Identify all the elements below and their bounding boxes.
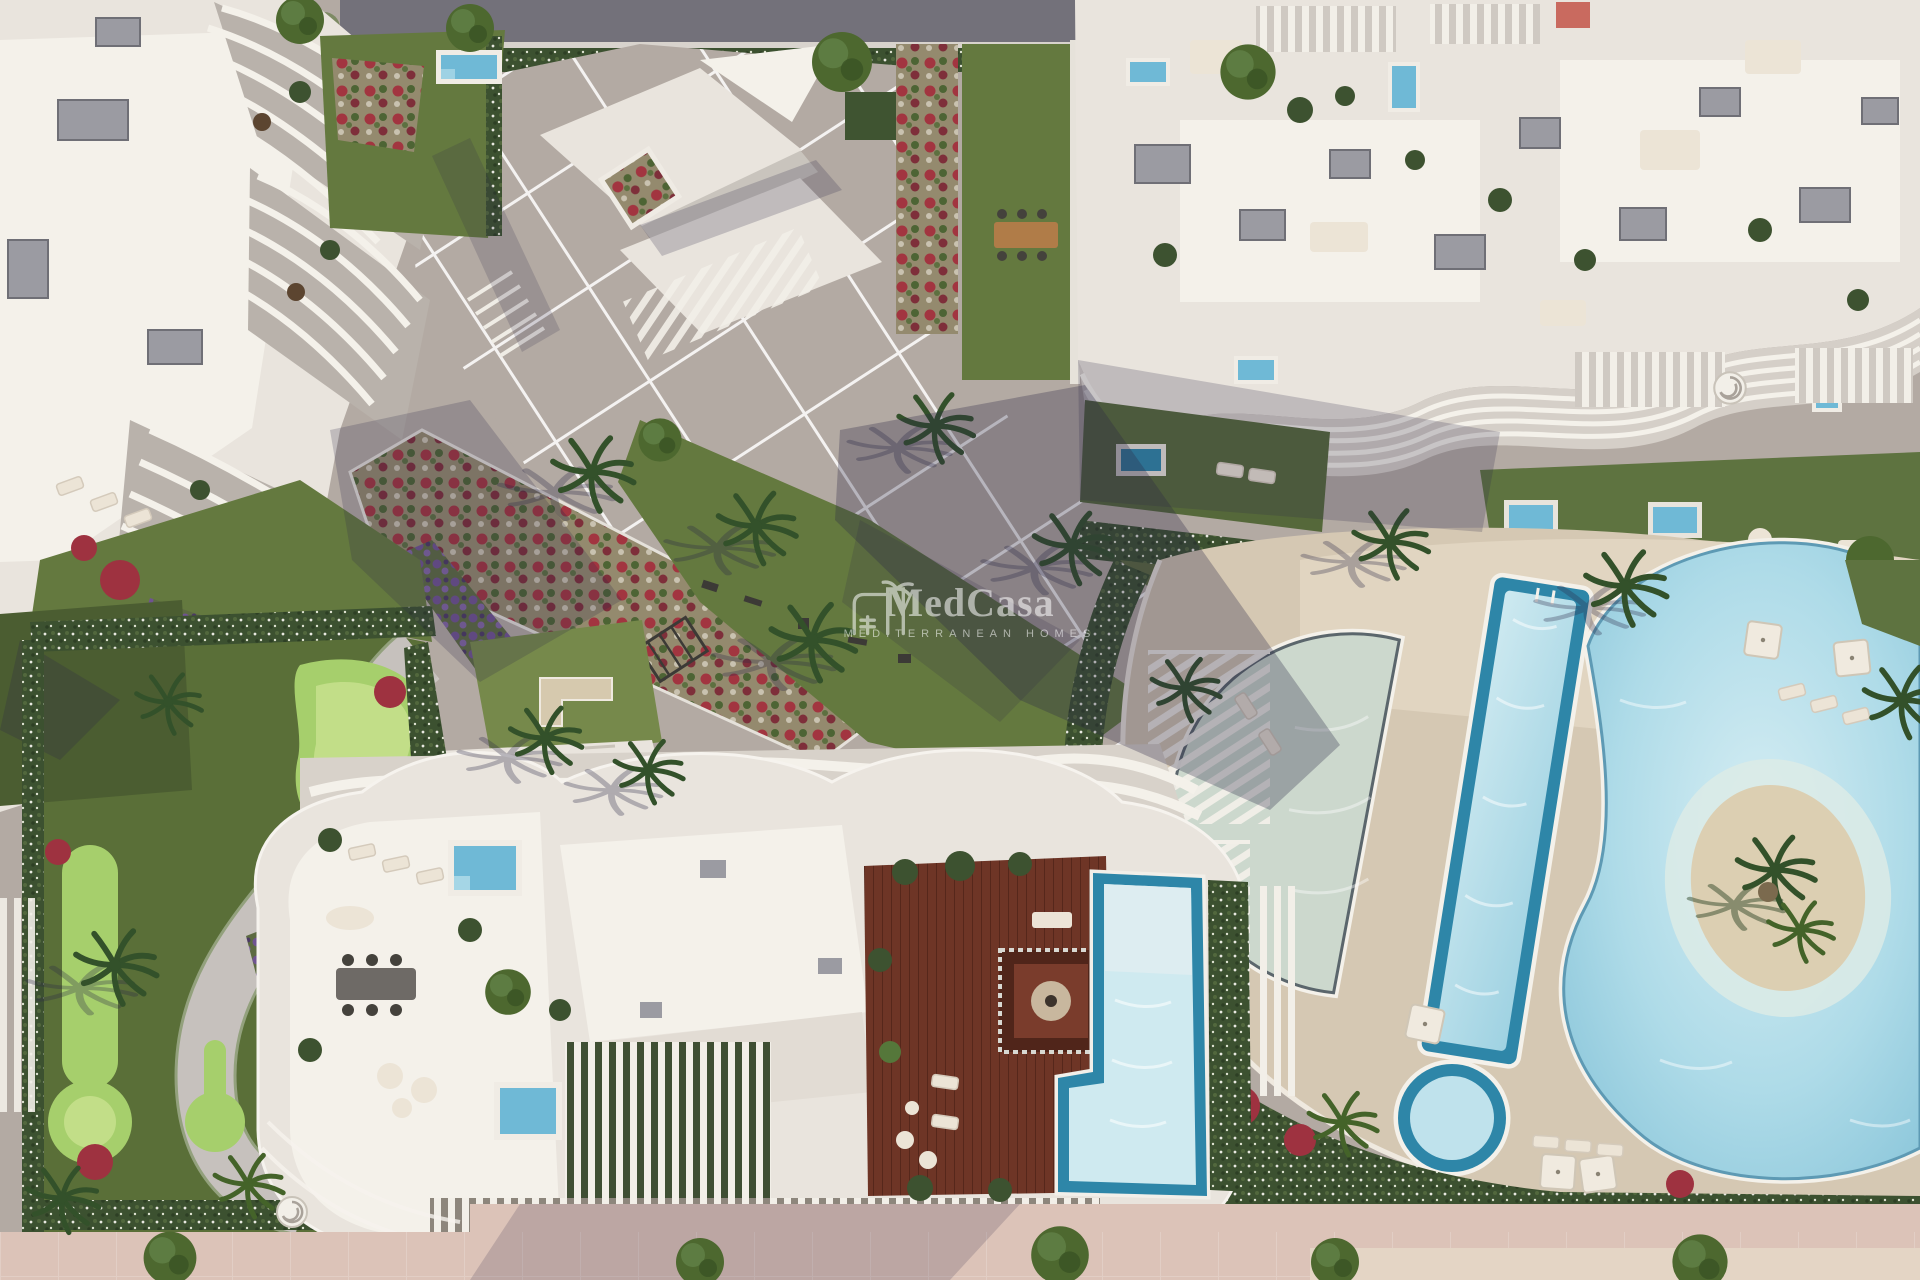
aerial-render-scene: MedCasa MEDITERRANEAN HOMES <box>0 0 1920 1280</box>
building-south <box>255 744 1302 1257</box>
kids-pool <box>1398 1064 1506 1172</box>
sunken-lounge <box>1000 950 1102 1052</box>
lagoon-pool <box>1564 543 1920 1179</box>
small-pool <box>436 50 502 84</box>
flower-strip <box>896 44 958 334</box>
red-roof-structure <box>1556 2 1590 28</box>
spiral-staircase <box>1714 372 1746 404</box>
site-plan-render <box>0 0 1920 1280</box>
plunge-pool-2 <box>500 1088 556 1134</box>
dining-table <box>336 968 416 1000</box>
spiral-staircase-sw <box>277 1197 307 1227</box>
